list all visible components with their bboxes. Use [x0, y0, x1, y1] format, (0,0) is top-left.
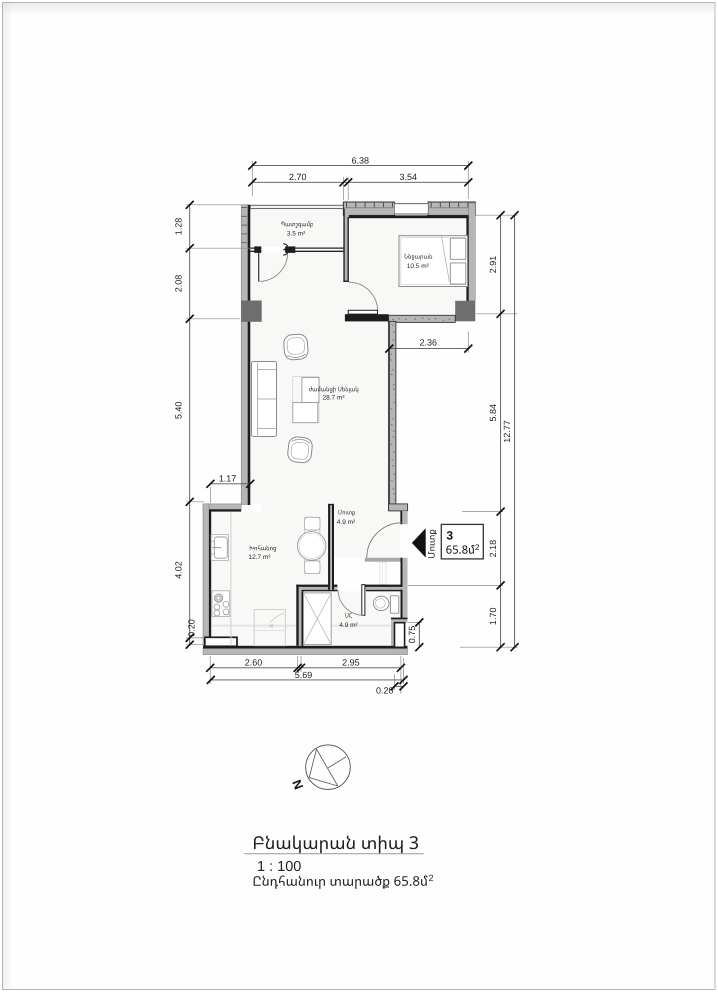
svg-text:1 : 100: 1 : 100: [257, 859, 301, 875]
svg-text:3: 3: [446, 529, 453, 543]
svg-text:1.70: 1.70: [488, 608, 498, 626]
svg-text:2: 2: [475, 543, 480, 552]
svg-text:5.69: 5.69: [295, 670, 313, 680]
svg-text:2.91: 2.91: [488, 256, 498, 274]
svg-text:0.20: 0.20: [187, 619, 197, 637]
svg-text:6.38: 6.38: [352, 155, 370, 165]
svg-text:3.5 m²: 3.5 m²: [287, 230, 306, 237]
svg-text:3.54: 3.54: [400, 172, 418, 182]
svg-text:12.77: 12.77: [502, 420, 512, 443]
svg-text:28.7 m²: 28.7 m²: [322, 394, 345, 401]
svg-text:0.75: 0.75: [407, 626, 417, 644]
svg-text:4.9 m²: 4.9 m²: [339, 622, 358, 629]
svg-text:4.9 m²: 4.9 m²: [337, 519, 356, 526]
svg-text:5.84: 5.84: [488, 404, 498, 422]
svg-text:12.7 m²: 12.7 m²: [248, 554, 271, 561]
svg-text:2.18: 2.18: [488, 540, 498, 558]
svg-text:1.28: 1.28: [174, 218, 184, 236]
svg-text:2.08: 2.08: [174, 275, 184, 293]
svg-text:2: 2: [429, 873, 434, 883]
svg-text:2.60: 2.60: [245, 658, 263, 668]
svg-text:2.36: 2.36: [420, 338, 438, 348]
svg-text:0.20: 0.20: [376, 685, 394, 695]
svg-text:2.95: 2.95: [342, 658, 360, 668]
svg-text:1.17: 1.17: [219, 473, 237, 483]
svg-text:5.40: 5.40: [174, 402, 184, 420]
svg-text:10.5 m²: 10.5 m²: [407, 263, 430, 270]
svg-text:2.70: 2.70: [289, 172, 307, 182]
svg-text:4.02: 4.02: [174, 561, 184, 579]
